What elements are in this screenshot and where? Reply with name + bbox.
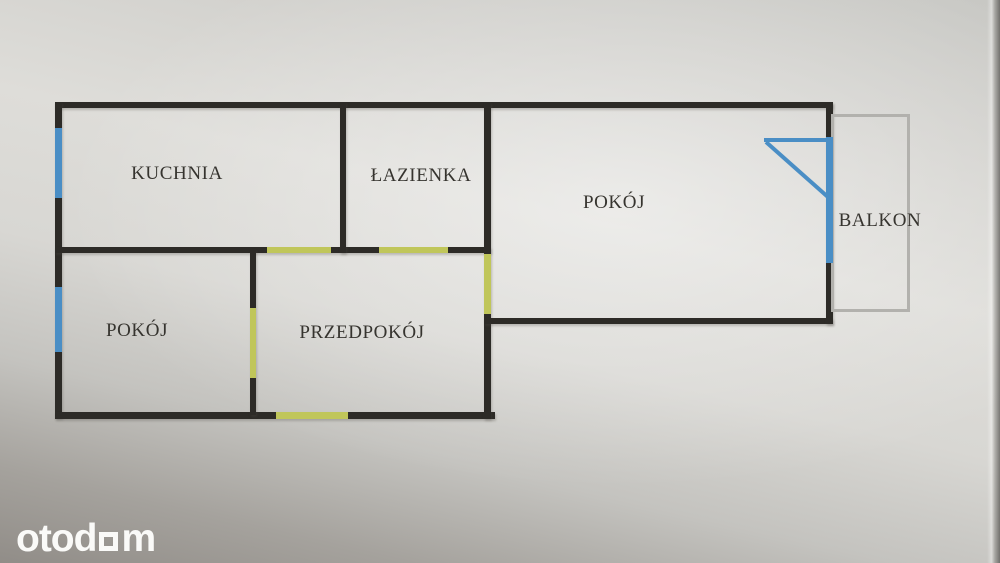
door-pokoj-small <box>250 308 256 378</box>
room-label-lazienka: ŁAZIENKA <box>371 165 472 187</box>
otodom-logo: otod m <box>16 519 155 558</box>
door-entrance <box>276 412 348 419</box>
room-label-przedpokoj: PRZEDPOKÓJ <box>299 322 424 344</box>
room-label-pokoj-main: POKÓJ <box>583 192 645 214</box>
window-kuchnia <box>55 128 62 198</box>
otodom-logo-suffix: m <box>121 519 155 558</box>
wall-kuchnia-lazienka <box>340 102 346 253</box>
otodom-logo-prefix: otod <box>16 519 96 558</box>
otodom-square-glyph <box>99 532 118 551</box>
wall-pokoj-main-bottom <box>484 318 833 324</box>
balcony-door-leaf <box>764 138 828 142</box>
wall-bottom <box>55 412 495 419</box>
balcony-door-window <box>826 137 833 263</box>
paper-edge-shadow <box>987 0 1000 563</box>
window-pokoj-small <box>55 287 62 352</box>
balcony-door-swing <box>765 141 830 199</box>
door-lazienka <box>379 247 448 253</box>
wall-top <box>55 102 833 108</box>
door-kuchnia <box>267 247 331 253</box>
room-label-pokoj-small: POKÓJ <box>106 320 168 342</box>
room-label-balkon: BALKON <box>839 210 922 232</box>
door-pokoj-main <box>484 254 491 314</box>
floorplan-photo: KUCHNIA ŁAZIENKA POKÓJ POKÓJ PRZEDPOKÓJ … <box>0 0 1000 563</box>
room-label-kuchnia: KUCHNIA <box>131 163 223 185</box>
